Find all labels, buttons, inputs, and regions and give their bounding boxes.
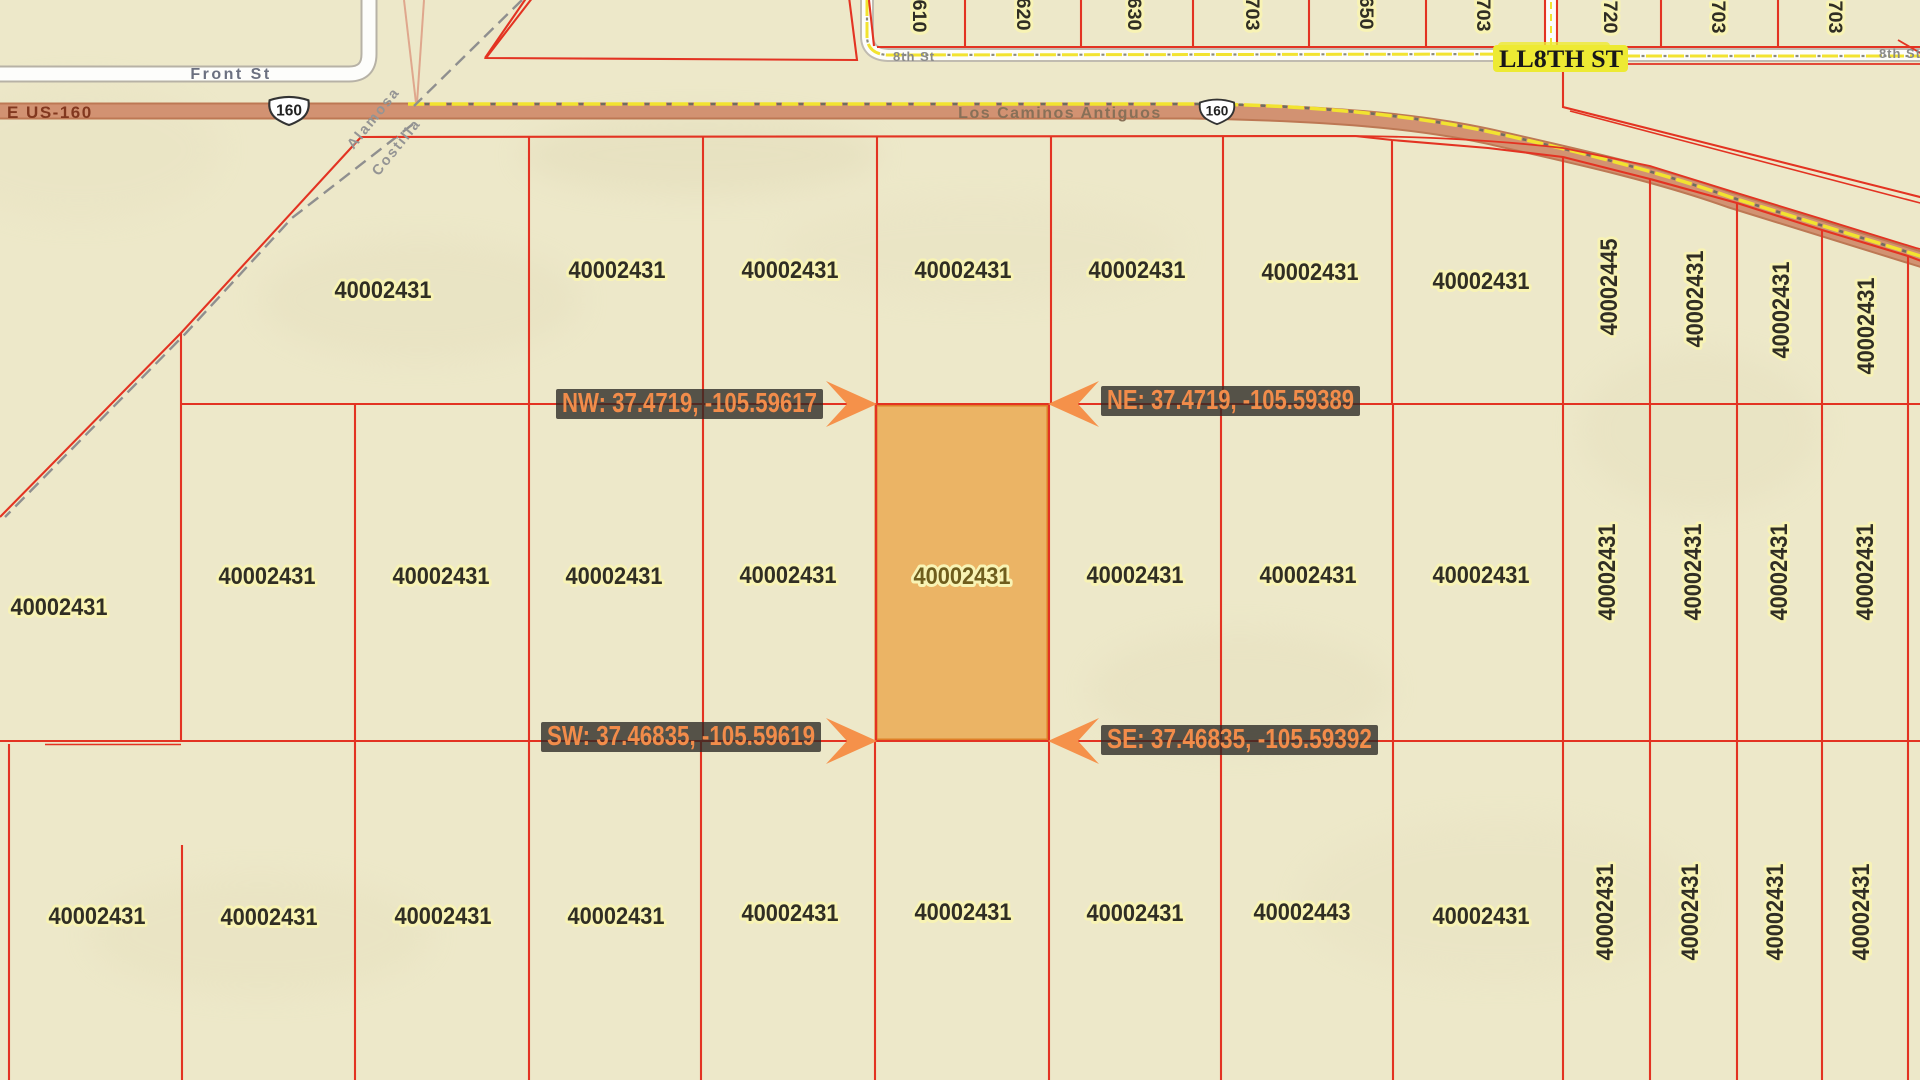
svg-text:703: 703 [1241,0,1262,31]
svg-text:40002431: 40002431 [1260,562,1357,589]
svg-text:630: 630 [1123,0,1144,31]
svg-text:40002431: 40002431 [1852,524,1879,621]
svg-text:40002431: 40002431 [219,563,316,590]
svg-text:40002431: 40002431 [566,563,663,590]
svg-text:SW: 37.46835, -105.59619: SW: 37.46835, -105.59619 [547,720,815,751]
svg-text:40002431: 40002431 [1087,562,1184,589]
svg-text:703: 703 [1472,0,1493,32]
svg-text:40002431: 40002431 [1768,262,1795,359]
svg-text:40002431: 40002431 [1594,524,1621,621]
svg-text:40002431: 40002431 [395,903,492,930]
svg-text:40002431: 40002431 [915,257,1012,284]
svg-text:40002431: 40002431 [335,277,432,304]
svg-text:40002431: 40002431 [1682,251,1709,348]
svg-text:40002431: 40002431 [915,899,1012,926]
svg-text:720: 720 [1599,1,1620,34]
svg-text:620: 620 [1012,0,1033,31]
svg-text:703: 703 [1707,1,1728,34]
svg-text:40002431: 40002431 [1433,268,1530,295]
svg-text:40002431: 40002431 [742,257,839,284]
svg-text:40002431: 40002431 [568,903,665,930]
svg-text:40002431: 40002431 [11,594,108,621]
svg-text:40002431: 40002431 [1089,257,1186,284]
svg-text:40002431: 40002431 [1433,903,1530,930]
svg-text:40002431: 40002431 [393,563,490,590]
svg-text:8th St: 8th St [893,49,935,64]
svg-text:NW: 37.4719, -105.59617: NW: 37.4719, -105.59617 [562,387,817,418]
svg-text:160: 160 [276,102,302,119]
svg-text:SE: 37.46835, -105.59392: SE: 37.46835, -105.59392 [1107,723,1372,754]
svg-text:40002431: 40002431 [1677,864,1704,961]
svg-text:40002431: 40002431 [914,563,1011,590]
svg-text:703: 703 [1824,1,1845,34]
svg-text:NE: 37.4719, -105.59389: NE: 37.4719, -105.59389 [1107,384,1354,415]
svg-text:Los Caminos Antiguos: Los Caminos Antiguos [958,105,1162,122]
svg-text:8th St: 8th St [1879,46,1920,61]
svg-text:E US-160: E US-160 [7,103,93,122]
svg-text:40002431: 40002431 [221,904,318,931]
svg-text:40002431: 40002431 [1433,562,1530,589]
svg-text:40002431: 40002431 [1848,864,1875,961]
svg-text:40002431: 40002431 [569,257,666,284]
svg-text:160: 160 [1206,104,1229,119]
svg-text:610: 610 [908,0,929,33]
svg-text:40002431: 40002431 [1853,278,1880,375]
svg-text:40002431: 40002431 [1592,864,1619,961]
svg-text:40002431: 40002431 [740,562,837,589]
svg-text:40002445: 40002445 [1596,239,1623,336]
svg-text:650: 650 [1355,0,1376,30]
svg-text:40002431: 40002431 [1766,524,1793,621]
svg-text:40002431: 40002431 [1680,524,1707,621]
svg-text:40002443: 40002443 [1254,899,1351,926]
svg-text:40002431: 40002431 [1087,900,1184,927]
svg-text:40002431: 40002431 [1262,259,1359,286]
svg-text:Front St: Front St [190,66,271,83]
svg-text:40002431: 40002431 [1762,864,1789,961]
svg-text:LL8TH ST: LL8TH ST [1499,46,1623,73]
svg-text:40002431: 40002431 [49,903,146,930]
svg-text:40002431: 40002431 [742,900,839,927]
